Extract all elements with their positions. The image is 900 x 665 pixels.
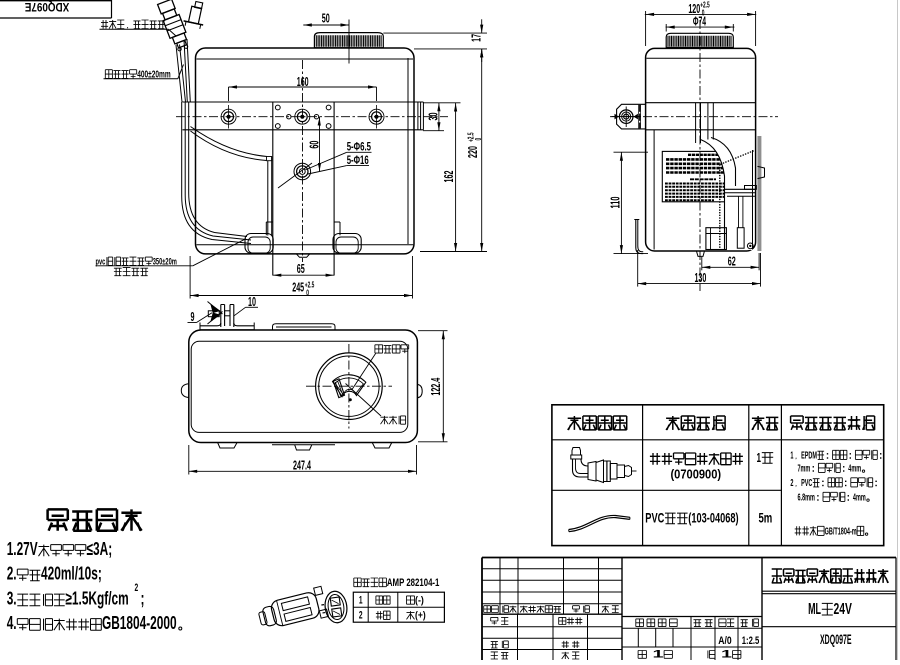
svg-text:122.4: 122.4 [428,377,443,395]
svg-text:GB1804-2000: GB1804-2000 [102,613,177,633]
svg-text:0: 0 [474,137,483,140]
svg-text:5m: 5m [759,510,773,526]
svg-text:247.4: 247.4 [293,458,311,473]
svg-text:;: ; [141,589,145,609]
svg-text:≤3A;: ≤3A; [87,539,113,559]
svg-text:4.: 4. [7,613,17,633]
svg-text:(0700900): (0700900) [670,468,721,482]
svg-text:1: 1 [653,649,664,661]
svg-text:1: 1 [721,649,732,661]
svg-text:AMP 282104-1: AMP 282104-1 [387,577,440,589]
svg-text:62: 62 [728,254,736,269]
svg-text:160: 160 [297,74,309,89]
svg-text:GB/T1804-m: GB/T1804-m [825,527,857,538]
svg-text:7mm: 7mm [798,464,811,475]
svg-text:110: 110 [608,197,623,209]
svg-text:XDQ097E: XDQ097E [24,0,69,12]
svg-text:220: 220 [465,146,480,158]
svg-text:5-Φ16: 5-Φ16 [347,153,369,167]
svg-text:≥1.5Kgf/cm: ≥1.5Kgf/cm [65,589,128,609]
svg-text:5-Φ6.5: 5-Φ6.5 [347,140,371,154]
svg-text:2: 2 [359,610,363,622]
svg-text:PVC: PVC [645,510,664,526]
svg-text:420ml/10s;: 420ml/10s; [41,564,102,584]
svg-text:XDQ097E: XDQ097E [820,632,852,647]
svg-text:(-): (-) [415,595,424,606]
svg-text:(103-04068): (103-04068) [688,510,738,526]
svg-text:ML: ML [808,601,821,618]
svg-text:24V: 24V [834,601,853,618]
svg-text:17: 17 [468,34,483,42]
svg-text:120: 120 [688,1,700,16]
svg-text:9: 9 [191,309,195,324]
svg-text:130: 130 [694,270,706,285]
svg-text:1: 1 [359,595,363,607]
svg-text:0: 0 [702,9,705,18]
svg-text:(+): (+) [415,611,426,622]
svg-text:162: 162 [441,171,456,183]
svg-text:3.: 3. [7,589,17,609]
svg-text:4mm: 4mm [853,493,866,504]
svg-text:PVC: PVC [801,478,812,489]
svg-text:6.8mm: 6.8mm [798,493,815,504]
svg-text:1: 1 [790,451,793,462]
svg-text:A/0: A/0 [718,635,731,647]
svg-text:10: 10 [248,294,256,309]
svg-text:2: 2 [135,582,139,594]
svg-text:2.: 2. [7,564,17,584]
svg-text:1: 1 [757,450,762,465]
svg-text:1.27V: 1.27V [7,539,38,559]
svg-text:50: 50 [322,11,330,26]
svg-text:4mm: 4mm [848,464,861,475]
svg-text:2: 2 [790,478,793,489]
svg-text:EPDM: EPDM [801,451,817,462]
svg-text:60: 60 [307,141,322,149]
svg-text:1:2.5: 1:2.5 [742,635,760,647]
svg-text:245: 245 [292,280,304,295]
svg-text:65: 65 [297,261,305,276]
svg-text:0: 0 [306,288,309,297]
